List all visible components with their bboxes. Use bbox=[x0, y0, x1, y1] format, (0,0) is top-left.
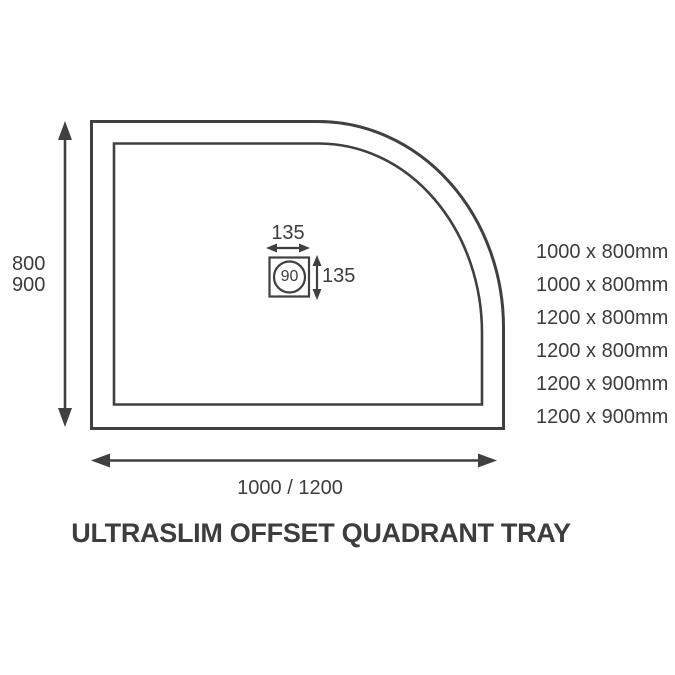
arrow-down-icon bbox=[313, 289, 322, 300]
size-list-item: 1000 x 800mm bbox=[536, 274, 668, 296]
height-option-900: 900 bbox=[12, 275, 46, 296]
arrow-up-icon bbox=[58, 121, 72, 140]
arrow-left-icon bbox=[91, 454, 110, 468]
drain-height-arrow bbox=[313, 255, 322, 300]
drain-waste-size-label: 90 bbox=[274, 269, 305, 285]
page-title: ULTRASLIM OFFSET QUADRANT TRAY bbox=[71, 518, 570, 549]
size-list: 1000 x 800mm 1000 x 800mm 1200 x 800mm 1… bbox=[536, 241, 668, 428]
width-dimension-label: 1000 / 1200 bbox=[190, 478, 390, 499]
drain-width-arrow bbox=[266, 244, 310, 253]
height-dimension-arrow bbox=[58, 121, 72, 427]
drain-height-label: 135 bbox=[322, 266, 355, 287]
arrow-left-icon bbox=[266, 244, 277, 253]
size-list-item: 1200 x 900mm bbox=[536, 406, 668, 428]
height-option-800: 800 bbox=[12, 254, 46, 275]
arrow-down-icon bbox=[58, 408, 72, 427]
arrow-right-icon bbox=[478, 454, 497, 468]
arrow-right-icon bbox=[299, 244, 310, 253]
size-list-item: 1000 x 800mm bbox=[536, 241, 668, 263]
size-list-item: 1200 x 800mm bbox=[536, 340, 668, 362]
height-dimension-label: 800 900 bbox=[12, 254, 46, 296]
width-dimension-arrow bbox=[91, 454, 497, 468]
drain-width-label: 135 bbox=[264, 223, 312, 244]
size-list-item: 1200 x 900mm bbox=[536, 373, 668, 395]
diagram-canvas: 800 900 1000 / 1200 135 135 90 1000 x 80… bbox=[0, 0, 675, 675]
size-list-item: 1200 x 800mm bbox=[536, 307, 668, 329]
arrow-up-icon bbox=[313, 255, 322, 266]
